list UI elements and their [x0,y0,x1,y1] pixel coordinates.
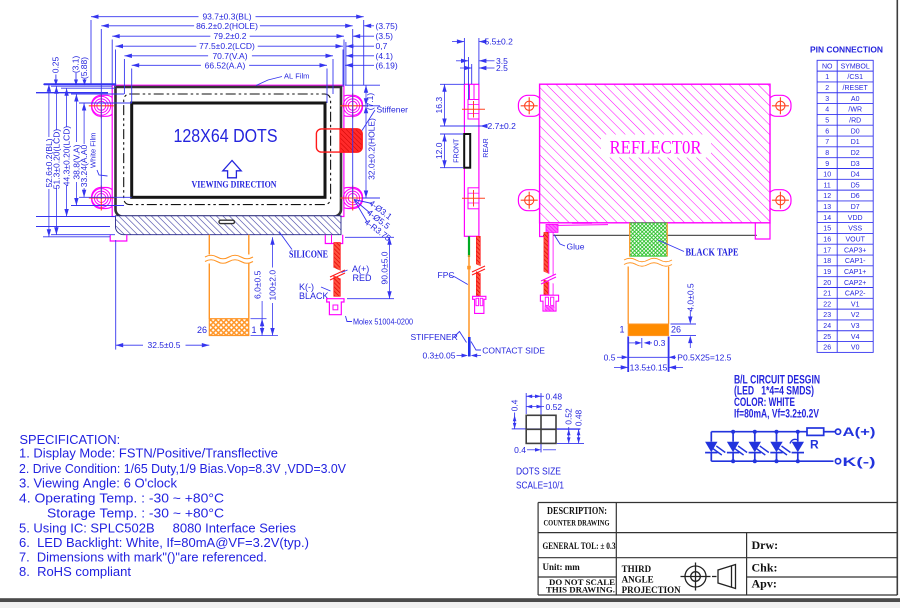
svg-text:VSS: VSS [848,226,862,233]
svg-text:(3.5): (3.5) [376,31,394,41]
svg-text:11: 11 [824,182,831,189]
svg-text:DOTS SIZE: DOTS SIZE [516,466,561,478]
svg-text:VIEWING DIRECTION: VIEWING DIRECTION [192,179,277,190]
svg-text:V3: V3 [851,323,860,330]
svg-text:/RESET: /RESET [843,85,869,92]
svg-text:2: 2 [825,85,829,92]
svg-text:SYMBOL: SYMBOL [841,63,870,70]
svg-text:32.5±0.5: 32.5±0.5 [147,340,180,350]
svg-text:79.2±0.2: 79.2±0.2 [213,31,246,41]
svg-text:CAP2+: CAP2+ [844,280,866,287]
svg-text:NO: NO [822,63,833,70]
svg-text:26: 26 [823,345,831,352]
svg-text:18: 18 [823,258,831,265]
svg-text:CAP2-: CAP2- [845,291,866,298]
svg-text:A0: A0 [851,96,860,103]
svg-text:16: 16 [823,237,831,244]
svg-text:90.0±5.0: 90.0±5.0 [379,251,389,284]
svg-text:2. Drive Condition: 1/65 Duty,: 2. Drive Condition: 1/65 Duty,1/9 Bias.V… [19,461,346,476]
svg-text:CONTACT SIDE: CONTACT SIDE [482,345,545,355]
svg-text:V1: V1 [851,301,860,308]
svg-text:PIN CONNECTION: PIN CONNECTION [810,46,883,55]
svg-text:V4: V4 [851,334,860,341]
svg-text:8. RoHS compliant: 8. RoHS compliant [19,564,131,579]
svg-text:Molex 51004-0200: Molex 51004-0200 [353,318,413,327]
svg-text:SCALE=10/1: SCALE=10/1 [516,480,564,492]
svg-text:21: 21 [823,291,831,298]
svg-text:SILICONE: SILICONE [289,250,328,261]
svg-text:Glue: Glue [567,242,585,252]
svg-text:ANGLE: ANGLE [622,574,654,584]
svg-text:BLACK TAPE: BLACK TAPE [686,248,739,259]
svg-text:20: 20 [823,280,831,287]
svg-text:0.4: 0.4 [514,445,526,455]
svg-text:D2: D2 [851,150,860,157]
svg-text:0.4: 0.4 [510,399,520,411]
svg-text:1: 1 [619,325,624,335]
svg-text:24: 24 [823,323,831,330]
svg-text:REFLECT0R: REFLECT0R [610,139,703,159]
svg-text:FPC: FPC [438,270,455,280]
svg-text:0.5: 0.5 [604,353,616,363]
svg-text:26: 26 [197,325,207,335]
svg-text:D4: D4 [851,172,860,179]
svg-text:9: 9 [825,161,829,168]
svg-text:V0: V0 [851,345,860,352]
svg-text:32.0±0.2(HOLE): 32.0±0.2(HOLE) [367,118,377,180]
svg-text:70.7(V.A): 70.7(V.A) [212,51,247,61]
svg-text:VDD: VDD [848,215,863,222]
svg-text:D5: D5 [851,182,860,189]
svg-text:0.48: 0.48 [573,409,583,426]
svg-text:SPECIFICATION:: SPECIFICATION: [20,432,121,447]
svg-text:R: R [810,438,819,452]
svg-text:23: 23 [823,312,831,319]
svg-text:5: 5 [825,118,829,125]
svg-text:Chk:: Chk: [752,560,778,574]
svg-text:D3: D3 [851,161,860,168]
svg-text:P0.5X25=12.5: P0.5X25=12.5 [677,353,731,363]
svg-text:White Film: White Film [89,133,98,168]
svg-text:DESCRIPTION:: DESCRIPTION: [547,506,607,517]
svg-text:BLACK: BLACK [299,291,329,301]
svg-text:66.52(A.A): 66.52(A.A) [205,60,246,70]
svg-text:D0: D0 [851,128,860,135]
svg-text:VOUT: VOUT [845,237,865,244]
svg-text:16.3: 16.3 [434,97,444,114]
svg-text:0.3: 0.3 [654,338,666,348]
svg-text:0.48: 0.48 [546,392,563,402]
svg-text:12: 12 [823,193,831,200]
svg-text:6,0±0.5: 6,0±0.5 [252,270,262,299]
svg-text:13: 13 [823,204,831,211]
svg-text:86.2±0.2(HOLE): 86.2±0.2(HOLE) [196,21,258,31]
svg-text:(5.88): (5.88) [79,57,89,79]
svg-text:19: 19 [823,269,831,276]
svg-text:6: 6 [825,128,829,135]
svg-text:12.0: 12.0 [434,142,444,159]
svg-text:0.52: 0.52 [564,408,574,425]
svg-text:3. Viewing Angle: 6 O'clock: 3. Viewing Angle: 6 O'clock [19,476,178,491]
svg-text:8: 8 [825,150,829,157]
svg-text:77.5±0.2(LCD): 77.5±0.2(LCD) [199,41,255,51]
svg-text:(6.19): (6.19) [376,60,398,70]
svg-text:AL Film: AL Film [284,72,309,81]
svg-text:Stiffener: Stiffener [377,105,409,115]
svg-text:D7: D7 [851,204,860,211]
svg-text:7: 7 [825,139,829,146]
svg-text:22: 22 [823,301,831,308]
svg-text:1: 1 [825,74,829,81]
svg-text:CAP1-: CAP1- [845,258,866,265]
svg-text:14: 14 [823,215,831,222]
svg-text:PROJECTION: PROJECTION [622,585,682,595]
svg-text:RED: RED [353,273,373,283]
svg-text:3: 3 [825,96,829,103]
svg-text:(3.75): (3.75) [376,21,398,31]
svg-text:Drw:: Drw: [752,538,779,552]
svg-text:Apv:: Apv: [752,577,777,591]
svg-text:5. Using IC: SPLC502B 8080: 5. Using IC: SPLC502B 8080 Interface Ser… [19,520,296,535]
svg-text:A(+): A(+) [843,425,876,439]
svg-text:D1: D1 [851,139,860,146]
svg-text:4. Operating Temp. : -30 ~ +80: 4. Operating Temp. : -30 ~ +80°C [19,491,224,506]
svg-text:(4.1): (4.1) [376,51,394,61]
svg-text:7. Dimensions with mark"()"ar: 7. Dimensions with mark"()"are reference… [19,550,267,565]
svg-text:51.3±0.20(LCD): 51.3±0.20(LCD) [52,129,62,190]
svg-text:Storage Temp. : -30 ~ +80°C: Storage Temp. : -30 ~ +80°C [47,506,224,521]
svg-text:REAR: REAR [483,138,490,157]
svg-text:1. Display Mode: FSTN/Positive: 1. Display Mode: FSTN/Positive/Transflec… [19,446,278,461]
svg-text:25: 25 [823,334,831,341]
svg-text:33.24(A.A0: 33.24(A.A0 [79,144,89,187]
svg-text:D6: D6 [851,193,860,200]
svg-text:GENERAL TOL: ± 0.3: GENERAL TOL: ± 0.3 [543,541,616,551]
svg-text:0.25: 0.25 [51,56,61,73]
svg-text:0.52: 0.52 [546,402,563,412]
svg-text:128X64 DOTS: 128X64 DOTS [174,125,278,146]
svg-text:13.5±0.15: 13.5±0.15 [630,363,668,373]
svg-text:/RD: /RD [849,118,861,125]
svg-text:6. LED Backlight: White, If=8: 6. LED Backlight: White, If=80mA@VF=3.2V… [19,535,309,550]
svg-text:2.5: 2.5 [496,63,508,73]
svg-text:100±2.0: 100±2.0 [268,270,278,301]
svg-text:V2: V2 [851,312,860,319]
svg-text:If=80mA, Vf=3.2±0.2V: If=80mA, Vf=3.2±0.2V [734,407,819,421]
svg-text:10: 10 [823,172,831,179]
svg-text:THIS DRAWING.: THIS DRAWING. [546,585,615,595]
svg-text:5.5±0.2: 5.5±0.2 [485,37,514,47]
svg-text:4: 4 [825,107,829,114]
svg-text:CAP3+: CAP3+ [844,247,866,254]
svg-text:15: 15 [823,226,831,233]
svg-text:STIFFENER: STIFFENER [411,332,458,342]
svg-text:/WR: /WR [848,107,862,114]
svg-text:Unit: mm: Unit: mm [543,562,581,572]
svg-text:26: 26 [671,325,681,335]
svg-text:CAP1+: CAP1+ [844,269,866,276]
svg-text:4.0±0.5: 4.0±0.5 [686,283,696,312]
svg-text:2.7±0.2: 2.7±0.2 [488,121,517,131]
svg-text:COUNTER DRAWING: COUNTER DRAWING [544,518,610,528]
svg-text:17: 17 [823,247,831,254]
svg-text:THIRD: THIRD [622,564,652,574]
svg-text:1: 1 [252,325,257,335]
svg-text:FRONT: FRONT [453,138,460,163]
svg-text:44.3±0.20(LCD): 44.3±0.20(LCD) [62,126,72,187]
svg-text:K(-): K(-) [843,455,876,469]
svg-text:0,7: 0,7 [376,41,388,51]
svg-text:/CS1: /CS1 [847,74,863,81]
svg-text:0.3±0.05: 0.3±0.05 [422,351,455,361]
